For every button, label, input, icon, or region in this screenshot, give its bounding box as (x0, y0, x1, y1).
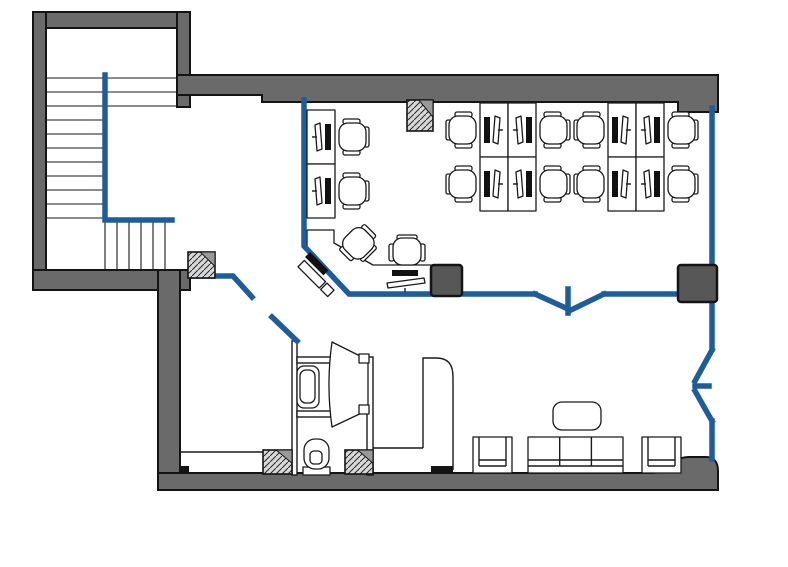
door-hinge (359, 405, 369, 414)
column-east (678, 265, 717, 302)
stairwell-left-wall (33, 12, 46, 290)
sink-alcove-bottom-wall (297, 411, 332, 417)
workstation (446, 157, 508, 211)
stairwell-top-wall (33, 12, 190, 28)
workstation (446, 103, 508, 157)
workstation (574, 103, 636, 157)
workstation (307, 164, 369, 218)
armchair (642, 437, 681, 473)
east-door-leaf-a (695, 350, 712, 381)
door-hinge (359, 354, 369, 363)
workstation (636, 157, 698, 211)
toilet (303, 439, 330, 475)
workstation (508, 157, 570, 211)
entry-partition (190, 276, 252, 297)
coffee-table (553, 402, 601, 430)
floor-plan-drawing (0, 0, 788, 567)
plan-layers (33, 12, 718, 490)
west-wall-lower (158, 270, 180, 473)
sink-alcove-top-wall (297, 357, 332, 363)
stair-rail (105, 75, 172, 220)
office-door-leaf-a (535, 294, 568, 309)
floor-plan-page (0, 0, 788, 567)
armchair (473, 437, 512, 473)
sink (297, 366, 319, 408)
office-chair (389, 235, 425, 265)
east-door-leaf-b (695, 391, 712, 421)
workstation (307, 110, 369, 164)
sofa (528, 437, 623, 473)
entry-door-leaf (272, 317, 297, 341)
office-door-leaf-b (569, 294, 604, 311)
workstation (508, 103, 570, 157)
reception-wall (423, 358, 453, 470)
column-center (431, 265, 462, 296)
wall-nub (180, 466, 189, 474)
wall-nub (431, 466, 453, 474)
workstation (574, 157, 636, 211)
